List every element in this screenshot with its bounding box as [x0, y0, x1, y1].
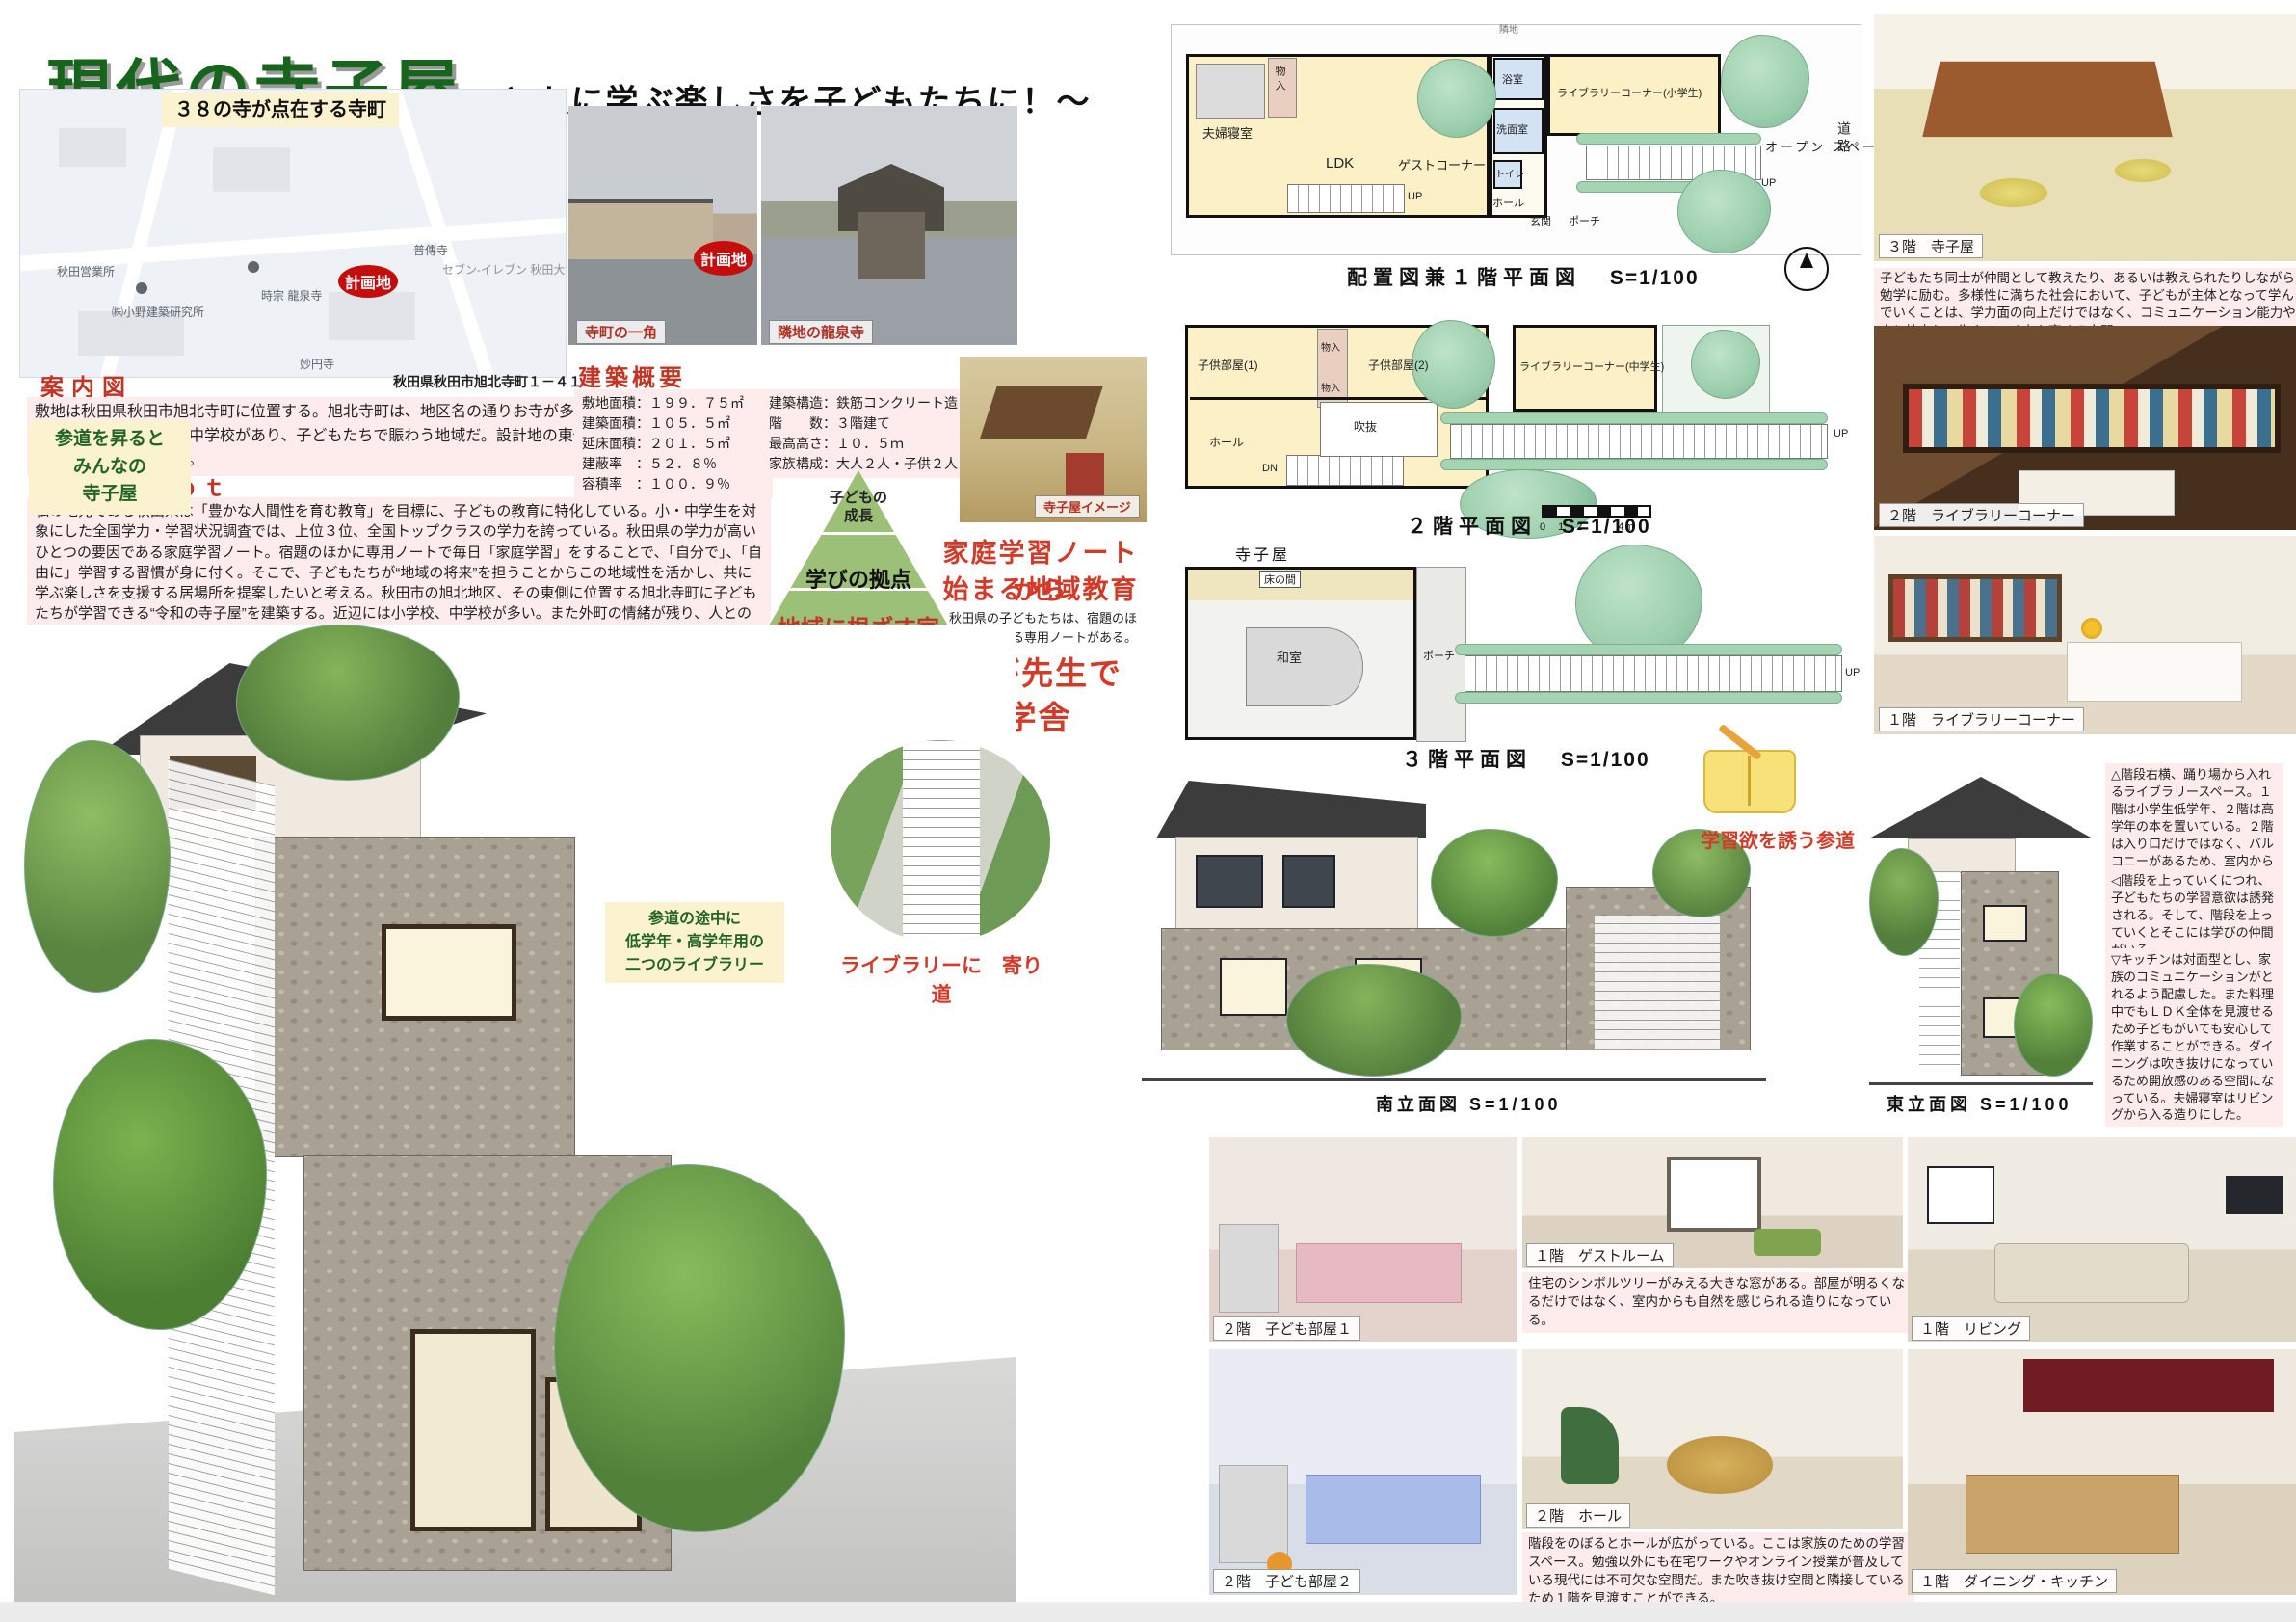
- approach-slogan: 学習欲を誘う参道: [1667, 825, 1888, 853]
- school-bag: [1066, 453, 1104, 497]
- plan-1f: 隣地 夫婦寝室 物入 LDK ゲストコーナー 浴室 洗面室 トイレ ホール 玄関…: [1171, 24, 1861, 255]
- room-label: UP: [1845, 667, 1860, 678]
- overview-item: 最高高さ：１０．５ｍ: [769, 434, 962, 454]
- vignette-stairs: [903, 740, 980, 943]
- room-label: 子供部屋(2): [1368, 357, 1429, 373]
- render-caption: １階 ゲストルーム: [1526, 1243, 1674, 1267]
- overview-item: 敷地面積：１９９．７５㎡: [582, 393, 765, 413]
- render-2f-childroom2: ２階 子ども部屋２: [1209, 1349, 1517, 1595]
- open-book-icon: [1703, 750, 1796, 813]
- render-3f-terakoya: ３階 寺子屋: [1874, 14, 2296, 261]
- room-label: 物入: [1272, 66, 1287, 94]
- stone-volume-upper: [255, 837, 575, 1157]
- render-1f-library: １階 ライブラリーコーナー: [1874, 536, 2296, 734]
- room-label: ポーチ: [1569, 213, 1600, 228]
- plan3-caption-text: ３階平面図: [1402, 749, 1532, 771]
- window: [1196, 855, 1263, 908]
- room-label: DN: [1262, 463, 1278, 474]
- map-label-myoenji: 妙円寺: [300, 356, 334, 372]
- terakoya-image-photo: 寺子屋イメージ: [960, 357, 1147, 522]
- overview-item: 容積率 ：１００．９％: [582, 474, 765, 494]
- overview-item: 階 数：３階建て: [769, 413, 962, 434]
- bottom-margin: [0, 1602, 2296, 1622]
- elevation-stairs: [1595, 916, 1720, 1049]
- room-label: ゲストコーナー: [1398, 155, 1486, 173]
- elevation-roof: [1869, 777, 2093, 838]
- window: [1927, 1166, 1994, 1224]
- overview-item: 建築面積：１０５．５㎡: [582, 413, 765, 434]
- presentation-board: 現代の寺子屋 ～ともに学ぶ楽しさを子どもたちに！～ 秋田営業所 ㈱小野建築研究所…: [0, 0, 2296, 1622]
- approach-bubble: 参道を昇ると みんなの 寺子屋: [29, 420, 191, 515]
- hedge: [1440, 412, 1828, 424]
- hedge: [1455, 692, 1842, 704]
- room-label: LDK: [1326, 155, 1354, 172]
- plan-2f: 子供部屋(1) 物入 物入 子供部屋(2) ライブラリーコーナー(中学生) ホー…: [1171, 301, 1860, 540]
- room-label: 浴室: [1502, 71, 1523, 87]
- render-caption: ２階 子ども部屋２: [1213, 1569, 1360, 1593]
- sunflower: [2081, 618, 2102, 639]
- room-label: ホール: [1492, 195, 1524, 210]
- plan2-void: [1320, 402, 1438, 457]
- desk: [1219, 1465, 1288, 1563]
- temple-wall: [568, 199, 713, 259]
- street-photo: 計画地 寺町の一角: [568, 106, 757, 345]
- render-1f-dining-kitchen: １階 ダイニング・キッチン: [1908, 1349, 2296, 1595]
- render-caption: １階 リビング: [1912, 1316, 2030, 1341]
- hedge: [1455, 644, 1842, 655]
- render-caption: １階 ダイニング・キッチン: [1912, 1569, 2117, 1593]
- plan1-neighbor-label: 隣地: [1499, 21, 1518, 36]
- map-building: [329, 292, 415, 340]
- location-map: 秋田営業所 ㈱小野建築研究所 時宗 龍泉寺 普傳寺 セブン-イレブン 秋田大町4…: [19, 89, 567, 378]
- round-table: [1667, 1436, 1773, 1494]
- plan3-approach-stairs: [1465, 655, 1842, 692]
- map-building: [213, 147, 290, 192]
- low-table: [980, 386, 1103, 439]
- kitchen-cabinets: [2023, 1359, 2274, 1412]
- plan3-scale: S=1/100: [1561, 749, 1650, 771]
- book-spine: [1748, 756, 1751, 806]
- plan2-approach-stairs: [1450, 424, 1828, 459]
- map-label-ryusenji: 時宗 龍泉寺: [261, 287, 322, 304]
- render-caption: １階 ライブラリーコーナー: [1879, 707, 2084, 731]
- window: [1282, 855, 1335, 908]
- room-label: 床の間: [1259, 571, 1301, 588]
- overview-item: 延床面積：２０１．５㎡: [582, 434, 765, 454]
- temple-gate-photo: 隣地の龍泉寺: [761, 106, 1017, 345]
- render-2f-childroom1: ２階 子ども部屋１: [1209, 1137, 1517, 1342]
- north-arrow-icon: [1784, 247, 1829, 291]
- map-pin-icon: [248, 261, 259, 273]
- plan1-bed: [1196, 64, 1265, 119]
- room-label: UP: [1408, 191, 1422, 202]
- pyramid-top-label: 子どもの 成長: [757, 490, 960, 526]
- room-label: ポーチ: [1423, 648, 1455, 663]
- window: [1983, 905, 2027, 942]
- tree: [24, 740, 171, 993]
- plan1-caption: 配置図兼１階平面図 S=1/100: [1347, 262, 1700, 291]
- south-elevation: [1142, 771, 1766, 1081]
- map-pin-icon: [136, 282, 147, 294]
- bed: [1306, 1475, 1481, 1544]
- east-elevation-caption: 東立面図 S=1/100: [1887, 1091, 2072, 1116]
- room-label: 和室: [1277, 648, 1302, 666]
- low-table: [1922, 62, 2172, 137]
- site-address: 秋田県秋田市旭北寺町１－４１: [393, 372, 582, 391]
- plan2-caption-text: ２階平面図: [1407, 516, 1537, 538]
- ground-line: [1142, 1078, 1766, 1081]
- detour-slogan: ライブラリーに 寄り道: [840, 950, 1042, 1008]
- room-label: ライブラリーコーナー(中学生): [1519, 359, 1664, 374]
- overview-left-column: 敷地面積：１９９．７５㎡ 建築面積：１０５．５㎡ 延床面積：２０１．５㎡ 建蔽率…: [574, 389, 773, 498]
- map-banner: ３８の寺が点在する寺町: [162, 93, 399, 127]
- window: [1667, 1157, 1761, 1232]
- temple-gate-body: [858, 212, 925, 279]
- room-label: 物入: [1321, 380, 1340, 394]
- room-label: UP: [1761, 177, 1776, 189]
- white-table: [2067, 642, 2242, 702]
- tree: [1431, 829, 1558, 937]
- plan3-desk: [1246, 627, 1363, 706]
- tree: [236, 625, 460, 781]
- street-photo-caption: 寺町の一角: [576, 320, 666, 344]
- room-label: 洗面室: [1496, 121, 1528, 137]
- elevation-upper-wall: [1175, 837, 1418, 930]
- hall-description: 階段をのぼるとホールが広がっている。ここは家族のための学習スペース。勉強以外にも…: [1522, 1532, 1914, 1611]
- overview-item: 家族構成：大人２人・子供２人: [769, 454, 962, 474]
- north-needle: [1800, 253, 1813, 268]
- window: [1220, 958, 1287, 1016]
- room-label: 夫婦寝室: [1202, 123, 1253, 142]
- render-caption: ２階 ライブラリーコーナー: [1879, 503, 2084, 527]
- zabuton-cushion: [1980, 178, 2047, 207]
- overview-item: 建築構造：鉄筋コンクリート造: [769, 393, 962, 413]
- east-elevation: [1869, 771, 2093, 1085]
- plan3-caption: ３階平面図 S=1/100: [1402, 744, 1650, 773]
- bed: [1296, 1243, 1462, 1303]
- render-caption: ２階 ホール: [1526, 1503, 1630, 1528]
- scale-bar-labels: 0 1 2 4m: [1540, 519, 1665, 534]
- map-label-fudenji: 普傳寺: [413, 242, 448, 258]
- map-label-office: 秋田営業所: [57, 263, 115, 279]
- render-1f-living: １階 リビング: [1908, 1137, 2296, 1342]
- dining-table: [1966, 1475, 2179, 1554]
- overview-right-column: 建築構造：鉄筋コンクリート造 階 数：３階建て 最高高さ：１０．５ｍ 家族構成：…: [761, 389, 969, 478]
- map-site-marker: 計画地: [338, 265, 398, 298]
- south-elevation-caption: 南立面図 S=1/100: [1376, 1091, 1562, 1116]
- south-needle: [1800, 268, 1813, 283]
- map-building: [59, 128, 126, 167]
- sofa: [1994, 1243, 2189, 1303]
- room-label: 道路: [1834, 121, 1854, 156]
- zabuton-cushion: [2115, 159, 2171, 182]
- street-site-marker: 計画地: [694, 241, 753, 276]
- plan3-tokonoma-strip: [1188, 570, 1413, 600]
- libraries-bubble: 参道の途中に 低学年・高学年用の 二つのライブラリー: [605, 902, 784, 983]
- terakoya-photo-caption: 寺子屋イメージ: [1035, 495, 1140, 518]
- render-1f-guestroom: １階 ゲストルーム: [1522, 1137, 1903, 1268]
- hedge: [1440, 459, 1828, 470]
- plan2-stairs: [1286, 455, 1404, 486]
- room-label: トイレ: [1495, 166, 1524, 180]
- floor-cushion: [1754, 1229, 1821, 1256]
- guestroom-description: 住宅のシンボルツリーがみえる大きな窓がある。部屋が明るくなるだけではなく、室内か…: [1522, 1272, 1914, 1333]
- note-kitchen: ▽キッチンは対面型とし、家族のコミュニケーションがとれるよう配慮した。また料理中…: [2105, 948, 2283, 1127]
- room-label: 玄関: [1530, 213, 1551, 228]
- tv: [2226, 1176, 2283, 1214]
- plan-tree: [1677, 170, 1771, 253]
- plan-tree: [1721, 35, 1809, 128]
- ground-line: [1869, 1082, 2093, 1085]
- render-caption: ２階 子ども部屋１: [1213, 1316, 1360, 1341]
- elevation-roof: [1156, 781, 1426, 838]
- room-label: 吹抜: [1354, 418, 1377, 435]
- hedge: [1576, 133, 1761, 145]
- map-label-seven-eleven: セブン-イレブン 秋田大町4丁目店 コンビニエンスストア: [442, 261, 567, 278]
- overview-item: 建蔽率 ：５２．８％: [582, 454, 765, 474]
- plan-3f: 床の間 和室 ポーチ UP: [1171, 559, 1860, 763]
- room-label: 子供部屋(1): [1198, 357, 1258, 373]
- entry-glass: [410, 1329, 536, 1531]
- render-2f-hall: ２階 ホール: [1522, 1349, 1903, 1529]
- room-label: ライブラリーコーナー(小学生): [1557, 85, 1702, 100]
- stair-vignette-photo: [831, 740, 1050, 943]
- desk: [1219, 1224, 1279, 1313]
- render-2f-library: ２階 ライブラリーコーナー: [1874, 326, 2296, 530]
- render-caption: ３階 寺子屋: [1879, 234, 1983, 258]
- room-label: 物入: [1321, 339, 1340, 354]
- room-label: ホール: [1209, 434, 1244, 450]
- overview-heading: 建築概要: [578, 359, 686, 392]
- bookshelf: [1888, 574, 2062, 642]
- map-label-lab: ㈱小野建築研究所: [112, 304, 204, 320]
- tree: [2014, 973, 2093, 1077]
- library-window: [382, 924, 516, 1021]
- tree: [1286, 964, 1462, 1077]
- bookshelf: [1903, 384, 2281, 453]
- plant: [1561, 1407, 1619, 1484]
- temple-photo-caption: 隣地の龍泉寺: [769, 320, 873, 344]
- plan1-inner-stairs: [1287, 184, 1405, 213]
- scale-bar: [1542, 505, 1651, 518]
- home-note-slogan-line2: 始まる地域教育: [930, 569, 1151, 606]
- plan1-caption-text: 配置図兼１階平面図: [1347, 267, 1581, 289]
- room-label: UP: [1834, 428, 1848, 439]
- plan1-scale: S=1/100: [1610, 267, 1700, 289]
